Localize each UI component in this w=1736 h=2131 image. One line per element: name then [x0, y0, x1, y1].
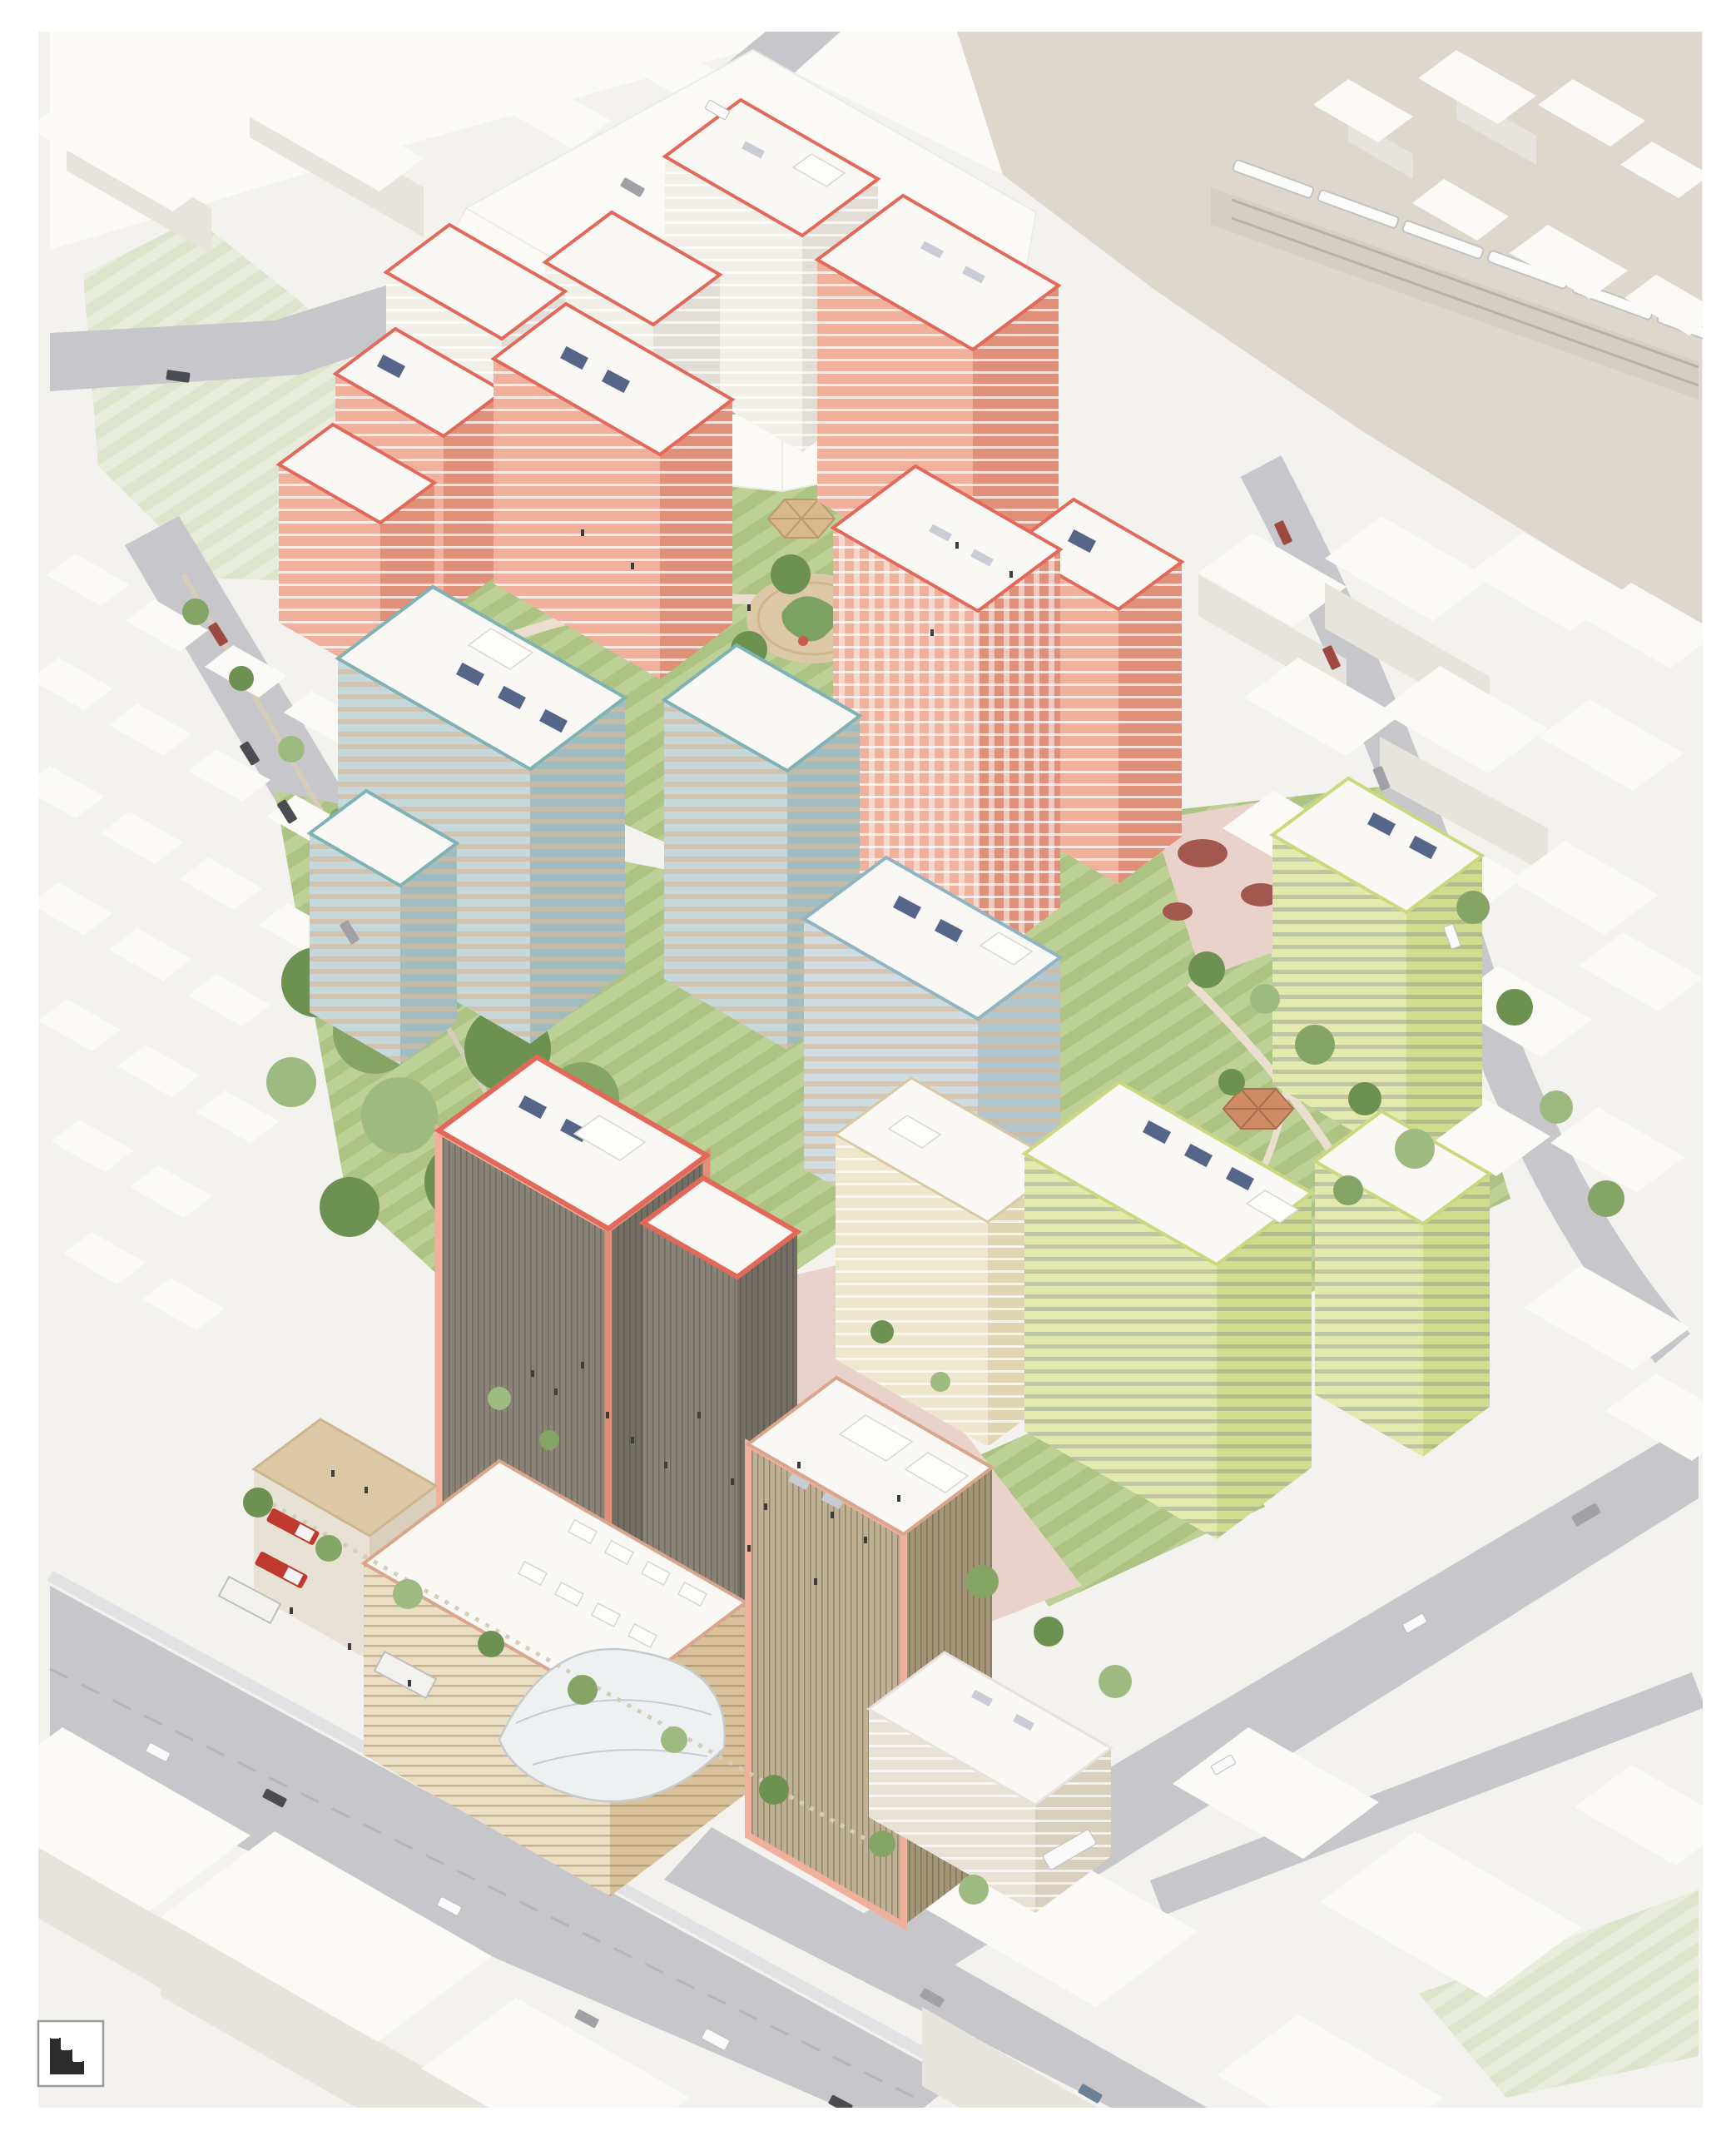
tree	[1348, 1082, 1381, 1115]
person	[331, 1470, 335, 1477]
playground-toy-red	[798, 636, 808, 646]
tree	[243, 1488, 273, 1518]
logo-tick	[62, 2049, 71, 2050]
tree	[870, 1320, 894, 1344]
person	[365, 1487, 368, 1493]
tree	[930, 1372, 950, 1392]
logo-tick	[73, 2060, 82, 2062]
tree	[539, 1430, 559, 1450]
tree	[229, 666, 254, 691]
page-margin-right	[1703, 0, 1736, 2131]
tree	[361, 1077, 438, 1154]
page-margin-bottom	[0, 2108, 1736, 2131]
tree	[1034, 1617, 1064, 1647]
page-margin-top	[0, 0, 1736, 32]
tree	[320, 1177, 379, 1237]
tree	[1333, 1175, 1363, 1205]
tree	[771, 554, 811, 594]
tree	[568, 1675, 598, 1705]
tree	[959, 1875, 989, 1905]
page-margin-left	[0, 0, 38, 2131]
tree	[1188, 951, 1225, 988]
tree	[1250, 984, 1280, 1014]
west-teal-low	[310, 791, 457, 1065]
tree	[1395, 1129, 1435, 1169]
tree	[488, 1387, 511, 1410]
person	[955, 542, 959, 549]
tree	[759, 1775, 789, 1805]
tree	[1295, 1025, 1335, 1065]
tree	[1588, 1180, 1624, 1217]
tree	[1218, 1069, 1245, 1095]
tree	[1456, 891, 1490, 924]
tree	[278, 736, 305, 762]
tree	[315, 1535, 342, 1562]
tree	[393, 1579, 423, 1609]
tree	[661, 1726, 687, 1753]
plaza-blob-1	[1178, 839, 1228, 867]
rendering-page	[0, 0, 1736, 2131]
tree	[1099, 1665, 1132, 1698]
tree	[478, 1631, 504, 1657]
person	[1009, 571, 1013, 578]
tree	[182, 599, 209, 625]
logo-mark	[38, 2021, 103, 2086]
tree	[1496, 989, 1533, 1026]
plaza-blob-3	[1163, 902, 1193, 921]
tree	[869, 1830, 895, 1857]
tree	[965, 1565, 999, 1598]
masterplan-aerial-rendering	[0, 0, 1736, 2131]
tree	[1540, 1090, 1573, 1124]
logo-tick	[51, 2037, 59, 2039]
tree	[266, 1057, 316, 1107]
